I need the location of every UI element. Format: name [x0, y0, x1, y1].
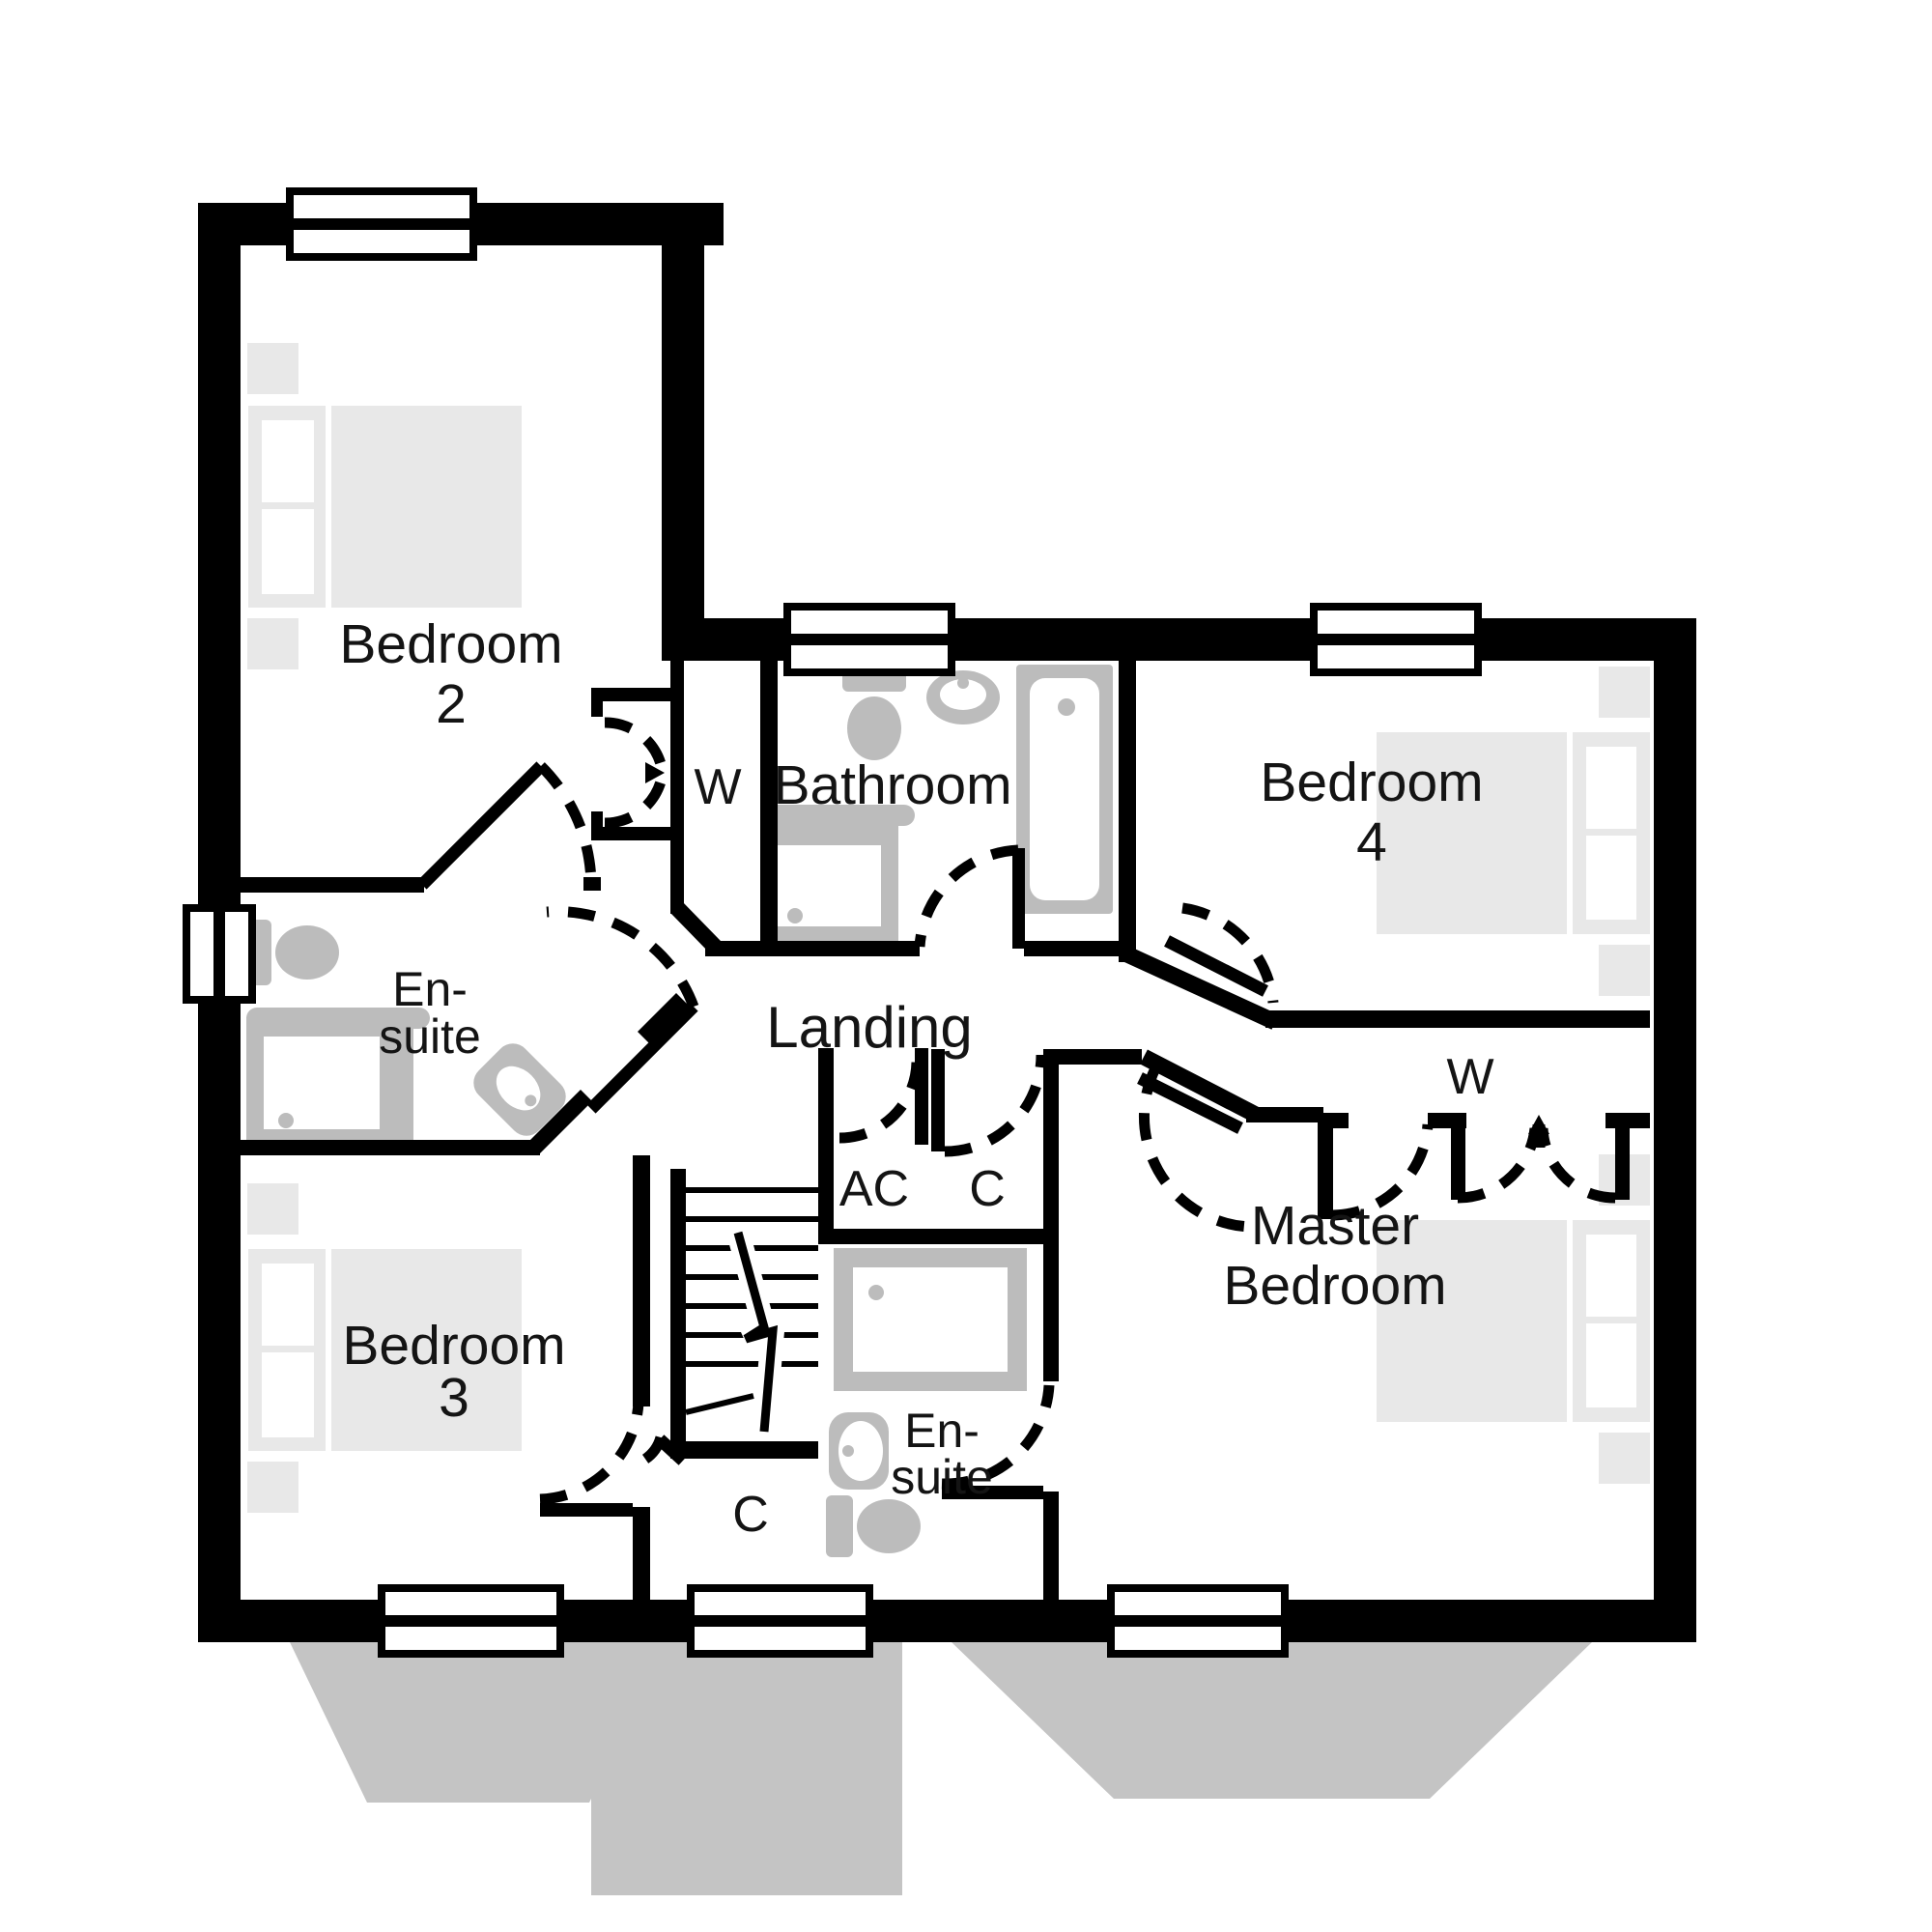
label-master-line1: Master: [1251, 1195, 1419, 1257]
wall-bathroom-bedroom4: [1119, 661, 1136, 962]
label-ensuite-master-line2: suite: [891, 1450, 993, 1504]
shower-icon: [834, 1248, 1027, 1391]
wall-wardrobe2-stub-top: [591, 688, 670, 701]
label-wardrobe-master: W: [1446, 1049, 1493, 1105]
label-ensuite1-line2: suite: [379, 1009, 481, 1064]
wall-jamb: [591, 811, 603, 840]
label-bedroom2-line2: 2: [436, 673, 467, 735]
door-bedroom2: [422, 766, 591, 885]
wall-jamb: [583, 877, 601, 891]
pillow: [1586, 747, 1636, 829]
label-bedroom4-line1: Bedroom: [1260, 752, 1483, 813]
label-master-line2: Bedroom: [1223, 1255, 1446, 1317]
wall-master-diag-connector: [1246, 1107, 1323, 1122]
bay-window-outline-right: [952, 1642, 1592, 1799]
arrow-icon: [1528, 1115, 1549, 1134]
pillow: [262, 509, 314, 594]
wall-master-west-upper: [1043, 1049, 1059, 1381]
window-ensuite1: [186, 908, 252, 1000]
wall-airing-cupboard-left: [818, 1048, 834, 1244]
window-bedroom2: [290, 191, 473, 257]
wall-wing-right: [662, 203, 704, 661]
wall-right: [1654, 618, 1696, 1642]
bathtub-icon: [1016, 665, 1113, 914]
wall-jamb: [591, 688, 603, 717]
wall-wardrobe2-stub-bottom: [591, 827, 670, 840]
window-master: [1111, 1588, 1285, 1654]
toilet-icon: [826, 1495, 921, 1557]
window-ensuite-master: [691, 1588, 869, 1654]
wall-wardrobe-master-post3: [1615, 1113, 1630, 1200]
nightstand: [247, 1183, 298, 1235]
wall-wardrobe-master-stub1: [1318, 1113, 1349, 1128]
nightstand: [247, 343, 298, 394]
pillow: [262, 1264, 314, 1346]
bed-mattress: [331, 406, 522, 608]
window-bedroom3: [382, 1588, 560, 1654]
wall-wardrobe-master-post2: [1451, 1113, 1465, 1200]
nightstand: [1599, 1433, 1650, 1484]
staircase: [670, 1169, 818, 1459]
door-bathroom: [920, 848, 1025, 949]
nightstand: [247, 1462, 298, 1513]
floor-plan: Bedroom 2 Bathroom Bedroom 4 En- suite W…: [0, 0, 1932, 1932]
stair-rail-bottom: [670, 1441, 818, 1459]
door-bedroom3: [540, 1403, 639, 1517]
pillow: [262, 1352, 314, 1437]
window-bedroom4: [1314, 607, 1478, 672]
pillow: [262, 420, 314, 502]
wall-wardrobe2-side: [670, 661, 684, 914]
sink-icon: [829, 1412, 889, 1490]
wall-wardrobe2-chamfer: [677, 908, 715, 947]
label-bedroom2-line1: Bedroom: [339, 613, 562, 675]
label-ensuite1-line1: En-: [392, 962, 468, 1016]
label-wardrobe-bedroom2: W: [694, 759, 741, 815]
label-cupboard-landing: C: [969, 1161, 1006, 1217]
wall-bedroom3-right-upper: [633, 1155, 650, 1406]
arrow-icon: [645, 762, 665, 783]
door-cupboard-landing: [931, 1049, 1041, 1151]
wall-cupboards-bottom: [818, 1229, 1059, 1244]
wall-ensuite1-top: [241, 877, 424, 893]
master-ensuite-fixtures: [826, 1248, 1027, 1557]
pillow: [1586, 1323, 1636, 1407]
pillow: [1586, 836, 1636, 920]
shower-icon: [760, 805, 915, 944]
label-cupboard-stairs: C: [732, 1487, 769, 1543]
nightstand: [247, 618, 298, 669]
porch-outline: [591, 1642, 902, 1895]
pillow: [1586, 1235, 1636, 1317]
toilet-icon: [842, 667, 906, 760]
bed-bedroom-4: [1377, 667, 1650, 996]
stair-rail-left: [670, 1169, 686, 1449]
ground-floor-outlines: [290, 1642, 1592, 1895]
nightstand: [1599, 667, 1650, 718]
wall-bedroom4-bottom: [1265, 1010, 1650, 1028]
wall-bedroom3-right-lower: [633, 1507, 650, 1600]
window-bathroom: [787, 607, 952, 672]
wall-master-west-lower: [1043, 1492, 1059, 1600]
label-bedroom3-line2: 3: [439, 1367, 469, 1429]
sink-icon: [926, 670, 1000, 724]
wall-bathroom-bottom-left: [705, 941, 920, 956]
nightstand: [1599, 945, 1650, 996]
label-landing: Landing: [766, 995, 973, 1060]
door-wardrobe2-bifold: [605, 723, 665, 823]
wall-bathroom-bottom-right: [1024, 941, 1136, 956]
wall-ensuite1-bottom: [241, 1140, 540, 1155]
door-airing-cupboard: [839, 1061, 917, 1138]
label-bathroom: Bathroom: [773, 754, 1011, 816]
toilet-icon: [244, 920, 339, 985]
label-airing-cupboard: AC: [839, 1161, 909, 1217]
label-bedroom4-line2: 4: [1356, 811, 1387, 873]
wall-landing-south-connector: [1059, 1049, 1142, 1065]
